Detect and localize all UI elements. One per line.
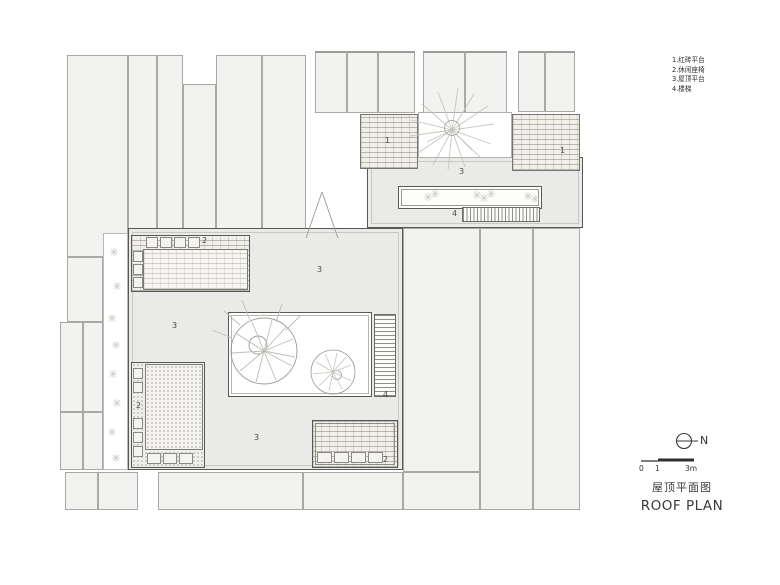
context-building — [303, 472, 403, 510]
context-building — [347, 51, 378, 113]
bench-seat — [351, 452, 366, 463]
bench-seat — [188, 237, 200, 248]
bench-seat — [334, 452, 349, 463]
context-building — [158, 472, 303, 510]
seating-platform — [145, 364, 203, 450]
bench-seat — [133, 432, 143, 443]
context-building — [403, 228, 480, 472]
context-building — [315, 51, 347, 113]
plan-number-label: 2 — [383, 456, 388, 464]
drawing-title-en: ROOF PLAN — [623, 498, 741, 514]
legend-item: 4.楼梯 — [672, 85, 705, 95]
bench-seat — [133, 277, 143, 288]
bench-seat — [133, 446, 143, 457]
context-building — [545, 51, 575, 112]
bench-seat — [133, 264, 143, 275]
context-building — [423, 51, 465, 113]
bench-seat — [133, 368, 143, 379]
plan-number-label: 4 — [383, 391, 388, 399]
context-building — [83, 412, 103, 470]
bench-seat — [368, 452, 383, 463]
context-building — [262, 55, 306, 233]
bench-seat — [133, 382, 143, 393]
context-building — [403, 472, 480, 510]
legend-item: 2.休闲座椅 — [672, 66, 705, 76]
plan-number-label: 3 — [459, 168, 464, 176]
brick-platform-1 — [512, 114, 580, 171]
bench-seat — [179, 453, 193, 464]
context-building — [128, 55, 157, 233]
planter-box — [398, 186, 542, 209]
planter-inner-line — [401, 189, 539, 206]
bench-seat — [147, 453, 161, 464]
north-label: N — [700, 434, 708, 447]
bench-seat — [317, 452, 332, 463]
bench-seat — [160, 237, 172, 248]
bench-seat — [163, 453, 177, 464]
context-building — [65, 472, 98, 510]
scale-label-zero: 0 — [639, 464, 644, 473]
plan-number-label: 2 — [136, 402, 141, 410]
tree-terrace — [418, 112, 512, 158]
context-building — [67, 257, 103, 322]
scale-bar — [641, 460, 694, 461]
context-building — [83, 322, 103, 412]
plan-number-label: 1 — [385, 137, 390, 145]
plan-number-label: 3 — [254, 434, 259, 442]
stairs-top — [462, 207, 540, 222]
context-building — [518, 51, 545, 112]
bench-seat — [133, 418, 143, 429]
bench-seat — [146, 237, 158, 248]
context-building — [216, 55, 262, 233]
context-building — [465, 51, 507, 113]
planted-path — [103, 233, 128, 470]
legend-item: 1.红砖平台 — [672, 56, 705, 66]
roof-plan-drawing: 1 1 2 2 2 3 3 3 3 4 4 1.红砖平台 2.休闲座椅 3.屋顶… — [0, 0, 780, 585]
bench-seat — [174, 237, 186, 248]
context-building — [60, 412, 83, 470]
courtyard-inner-line — [231, 315, 369, 394]
plan-number-label: 3 — [172, 322, 177, 330]
scale-label-one: 1 — [655, 464, 660, 473]
context-building — [378, 51, 415, 113]
plan-number-label: 3 — [317, 266, 322, 274]
context-building — [60, 322, 83, 412]
legend: 1.红砖平台 2.休闲座椅 3.屋顶平台 4.楼梯 — [672, 56, 705, 94]
context-building — [98, 472, 138, 510]
context-building — [157, 55, 183, 233]
context-building — [480, 228, 533, 510]
context-building — [183, 84, 216, 233]
seating-platform — [143, 249, 248, 290]
scale-label-three: 3m — [685, 464, 697, 473]
north-arrow-icon — [677, 434, 699, 449]
legend-item: 3.屋顶平台 — [672, 75, 705, 85]
plan-number-label: 1 — [560, 147, 565, 155]
title-block: 屋顶平面图 ROOF PLAN — [623, 479, 741, 514]
plan-number-label: 4 — [452, 210, 457, 218]
courtyard — [228, 312, 372, 397]
bench-seat — [133, 251, 143, 262]
plan-number-label: 2 — [202, 237, 207, 245]
context-building — [67, 55, 128, 257]
context-building — [533, 228, 580, 510]
stairs-right — [374, 314, 396, 397]
drawing-title-zh: 屋顶平面图 — [623, 479, 741, 495]
